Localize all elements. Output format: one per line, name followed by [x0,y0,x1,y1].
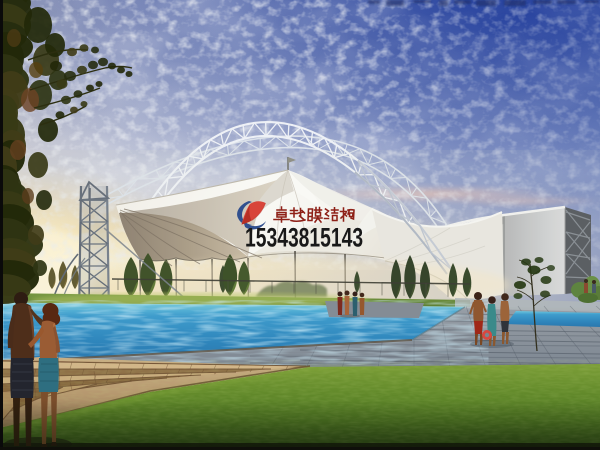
svg-text:15343815143: 15343815143 [245,222,363,252]
